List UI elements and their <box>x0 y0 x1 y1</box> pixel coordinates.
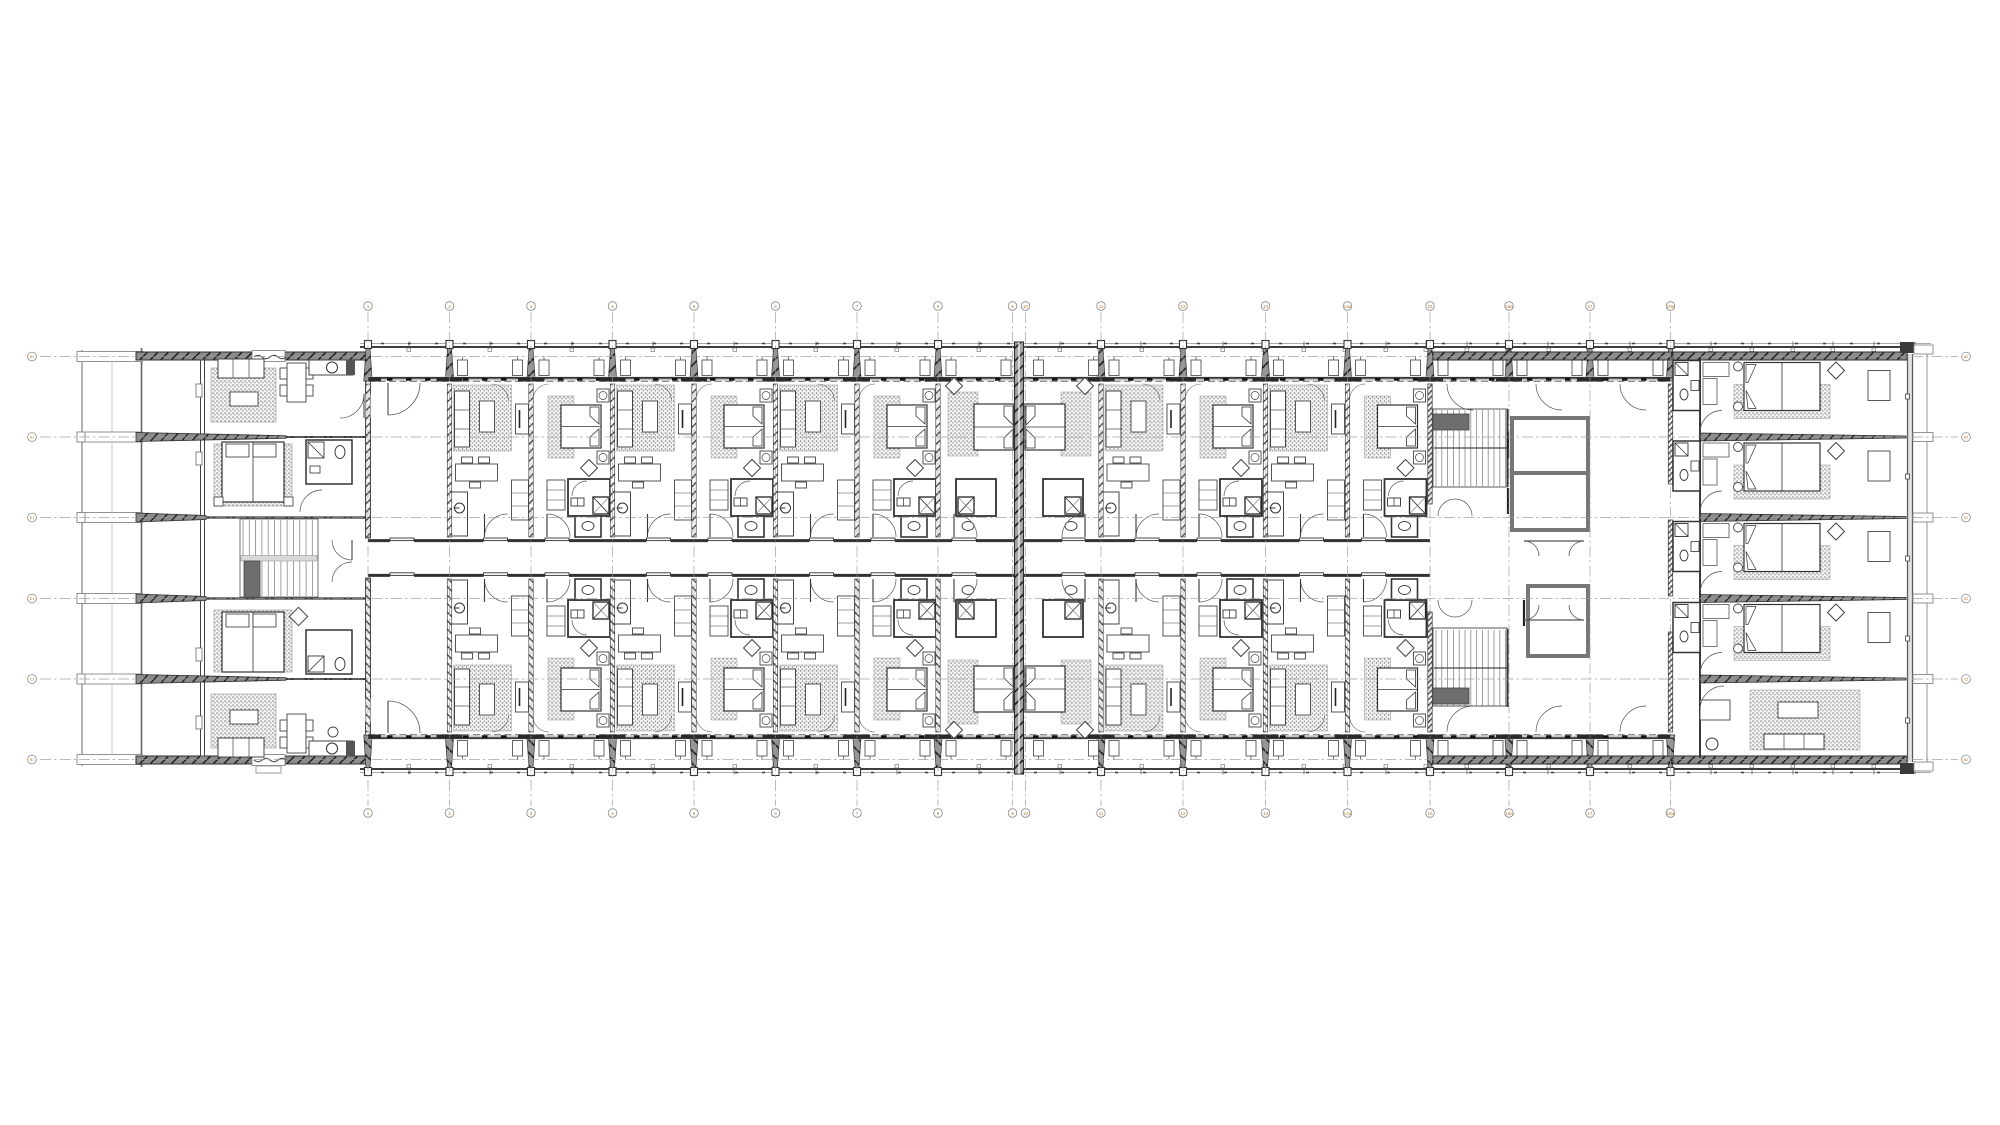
svg-text:8: 8 <box>937 811 940 816</box>
svg-text:2: 2 <box>448 811 451 816</box>
svg-text:A2: A2 <box>1964 435 1968 439</box>
svg-text:3: 3 <box>530 304 533 309</box>
svg-text:C2: C2 <box>1964 677 1969 681</box>
svg-text:2: 2 <box>448 304 451 309</box>
svg-text:C1: C1 <box>30 677 35 681</box>
svg-text:13: 13 <box>1263 304 1269 309</box>
svg-text:8: 8 <box>937 304 940 309</box>
svg-text:14a: 14a <box>1344 811 1352 816</box>
svg-text:13: 13 <box>1263 811 1269 816</box>
svg-text:4: 4 <box>611 811 614 816</box>
svg-text:16a: 16a <box>1505 811 1513 816</box>
svg-text:B2: B2 <box>1964 758 1968 762</box>
svg-text:B1: B1 <box>30 758 34 762</box>
svg-text:A1: A1 <box>30 435 34 439</box>
svg-text:D2: D2 <box>1964 597 1969 601</box>
svg-text:D1: D1 <box>30 597 35 601</box>
svg-text:B2: B2 <box>1964 355 1968 359</box>
svg-text:5: 5 <box>693 304 696 309</box>
svg-text:15: 15 <box>1427 811 1433 816</box>
svg-text:7: 7 <box>856 811 859 816</box>
svg-text:15: 15 <box>1427 304 1433 309</box>
svg-text:E1: E1 <box>30 516 34 520</box>
svg-text:18a: 18a <box>1667 811 1675 816</box>
svg-text:11: 11 <box>1099 304 1104 309</box>
svg-text:17: 17 <box>1587 304 1593 309</box>
svg-text:4: 4 <box>611 304 614 309</box>
svg-text:9: 9 <box>1011 811 1014 816</box>
svg-text:11: 11 <box>1099 811 1104 816</box>
svg-text:12: 12 <box>1180 304 1186 309</box>
svg-text:10: 10 <box>1023 304 1029 309</box>
svg-text:E2: E2 <box>1964 516 1968 520</box>
svg-text:16a: 16a <box>1505 304 1513 309</box>
svg-text:1: 1 <box>367 304 370 309</box>
svg-text:9: 9 <box>1011 304 1014 309</box>
svg-text:18a: 18a <box>1667 304 1675 309</box>
svg-text:10: 10 <box>1023 811 1029 816</box>
svg-text:3: 3 <box>530 811 533 816</box>
svg-text:B1: B1 <box>30 355 34 359</box>
svg-text:12: 12 <box>1180 811 1186 816</box>
svg-text:5: 5 <box>693 811 696 816</box>
svg-text:17: 17 <box>1587 811 1593 816</box>
svg-text:1: 1 <box>367 811 370 816</box>
svg-text:6: 6 <box>774 304 777 309</box>
svg-text:6: 6 <box>774 811 777 816</box>
svg-text:7: 7 <box>856 304 859 309</box>
svg-text:14a: 14a <box>1344 304 1352 309</box>
